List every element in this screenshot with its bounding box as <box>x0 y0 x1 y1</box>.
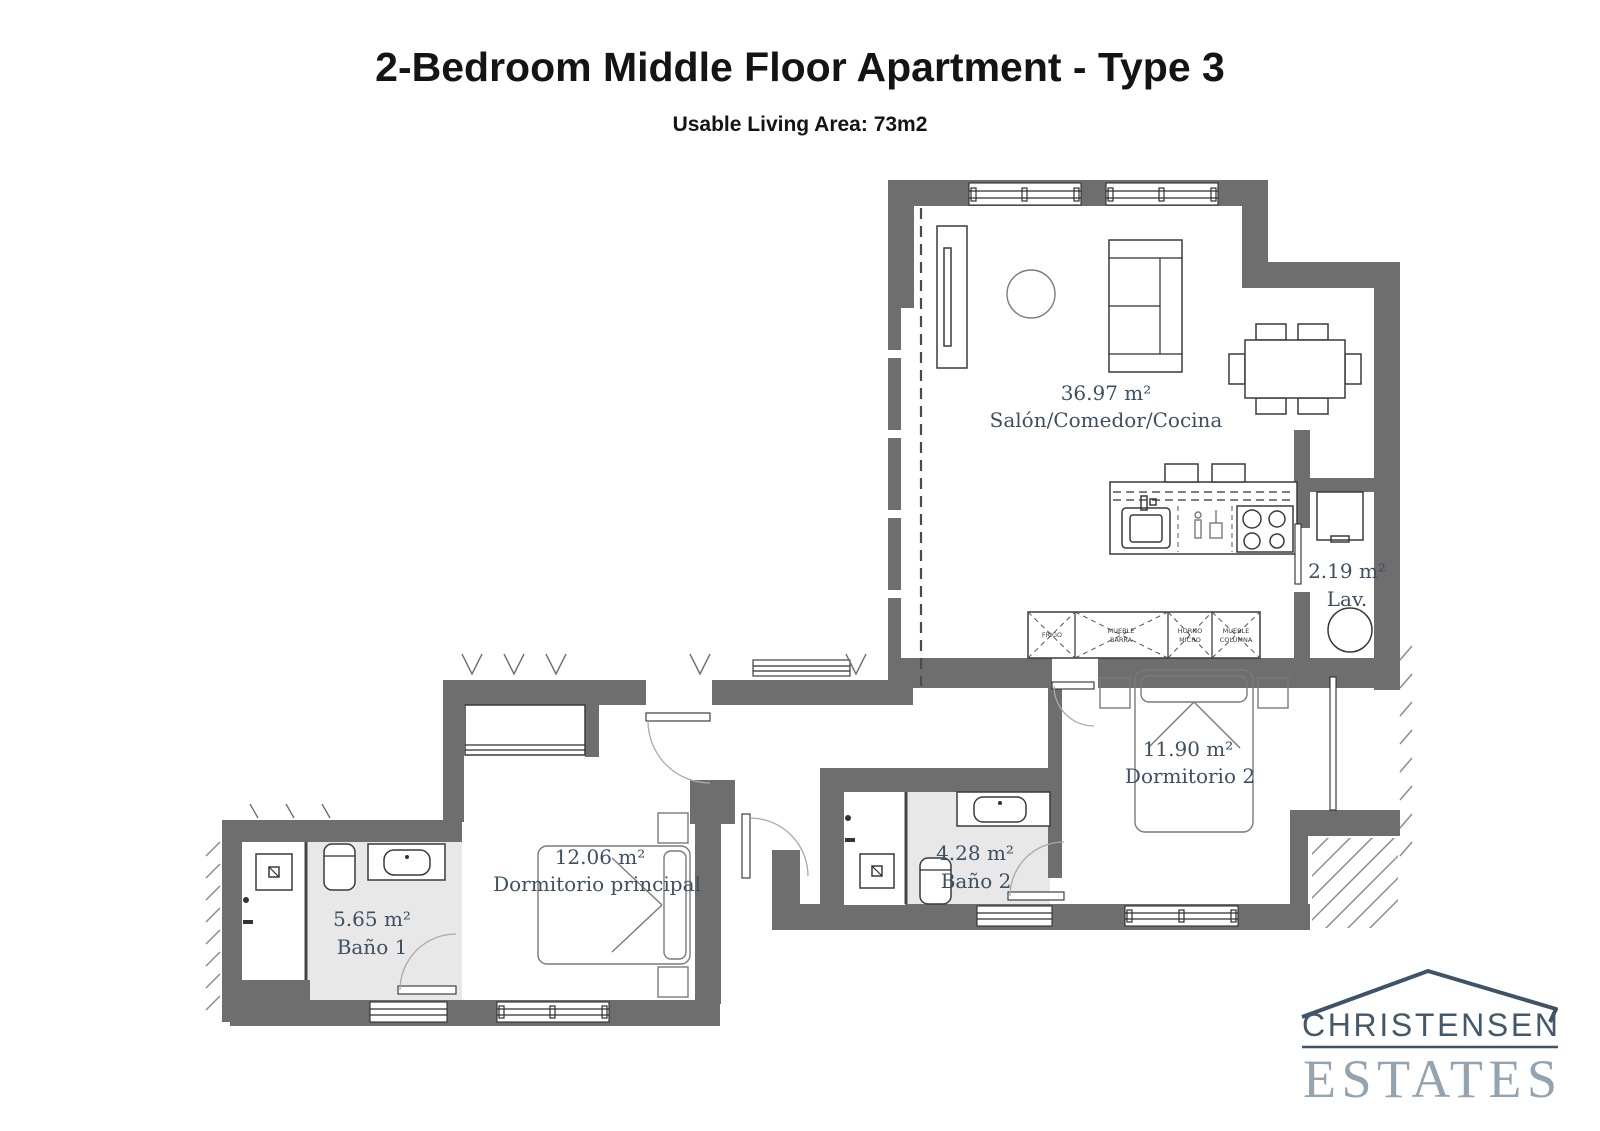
room-name-dormitorio2: Dormitorio 2 <box>1125 764 1255 788</box>
cabinet-label: MUEBLE <box>1223 627 1250 635</box>
cabinet-label: HORNO <box>1178 627 1203 635</box>
toilet-icon <box>324 844 355 890</box>
room-area-bano2: 4.28 m² <box>936 841 1014 865</box>
cabinet-label: MICRO <box>1179 636 1201 644</box>
wall-cabinet-icon <box>1165 464 1198 482</box>
nightstand-icon <box>658 813 688 843</box>
cabinet-label: MUEBLE <box>1108 627 1135 635</box>
room-area-bano1: 5.65 m² <box>333 907 411 931</box>
tv-unit-icon <box>937 226 967 368</box>
room-name-salon: Salón/Comedor/Cocina <box>990 408 1223 432</box>
room-name-bano2: Baño 2 <box>941 869 1012 893</box>
room-area-salon: 36.97 m² <box>1061 381 1152 405</box>
room-name-dormitorio-principal: Dormitorio principal <box>493 872 701 896</box>
nightstand-icon <box>658 967 688 997</box>
washing-machine-icon <box>1317 492 1363 540</box>
edge-hatch-right <box>1400 646 1412 856</box>
logo-word: ESTATES <box>1303 1049 1557 1109</box>
vanity-icon <box>368 844 445 880</box>
sofa-icon <box>1109 240 1182 372</box>
wall-cabinet-icon <box>1212 464 1245 482</box>
shower-head-icon <box>243 897 249 903</box>
edge-hatch-left <box>206 842 220 1010</box>
company-logo: CHRISTENSEN ESTATES <box>1302 971 1558 1109</box>
door-leaf <box>1052 682 1094 689</box>
room-name-lav: Lav. <box>1327 587 1368 611</box>
vanity-icon <box>957 792 1050 826</box>
door-leaf <box>398 986 456 994</box>
room-area-dormitorio-principal: 12.06 m² <box>555 845 646 869</box>
floor-plan: FRIGO MUEBLE BARRA HORNO MICRO MUEBLE CO… <box>0 0 1600 1131</box>
cabinet-label: COLUMNA <box>1220 636 1253 644</box>
room-name-bano1: Baño 1 <box>337 935 408 959</box>
floor-plan-page: 2-Bedroom Middle Floor Apartment - Type … <box>0 0 1600 1131</box>
closet-door-icon <box>1330 677 1336 810</box>
windows <box>370 183 1238 1022</box>
room-area-dormitorio2: 11.90 m² <box>1143 737 1234 761</box>
room-area-lav: 2.19 m² <box>1308 559 1386 583</box>
cabinet-label: FRIGO <box>1042 631 1062 639</box>
boiler-icon <box>1328 608 1372 652</box>
logo-name: CHRISTENSEN <box>1302 1007 1558 1043</box>
kitchen-cabinet-row: FRIGO MUEBLE BARRA HORNO MICRO MUEBLE CO… <box>1028 612 1260 658</box>
dining-table-icon <box>1229 324 1361 414</box>
shower-head-icon <box>845 815 851 821</box>
shower-icon <box>256 854 292 890</box>
closet-icon <box>465 705 585 755</box>
cabinet-label: BARRA <box>1110 636 1133 644</box>
side-table-icon <box>1007 270 1055 318</box>
door-leaf <box>646 713 710 721</box>
kitchen-counter <box>1110 464 1297 554</box>
terrace-hatch <box>1184 820 1478 960</box>
door-leaf <box>742 814 750 878</box>
